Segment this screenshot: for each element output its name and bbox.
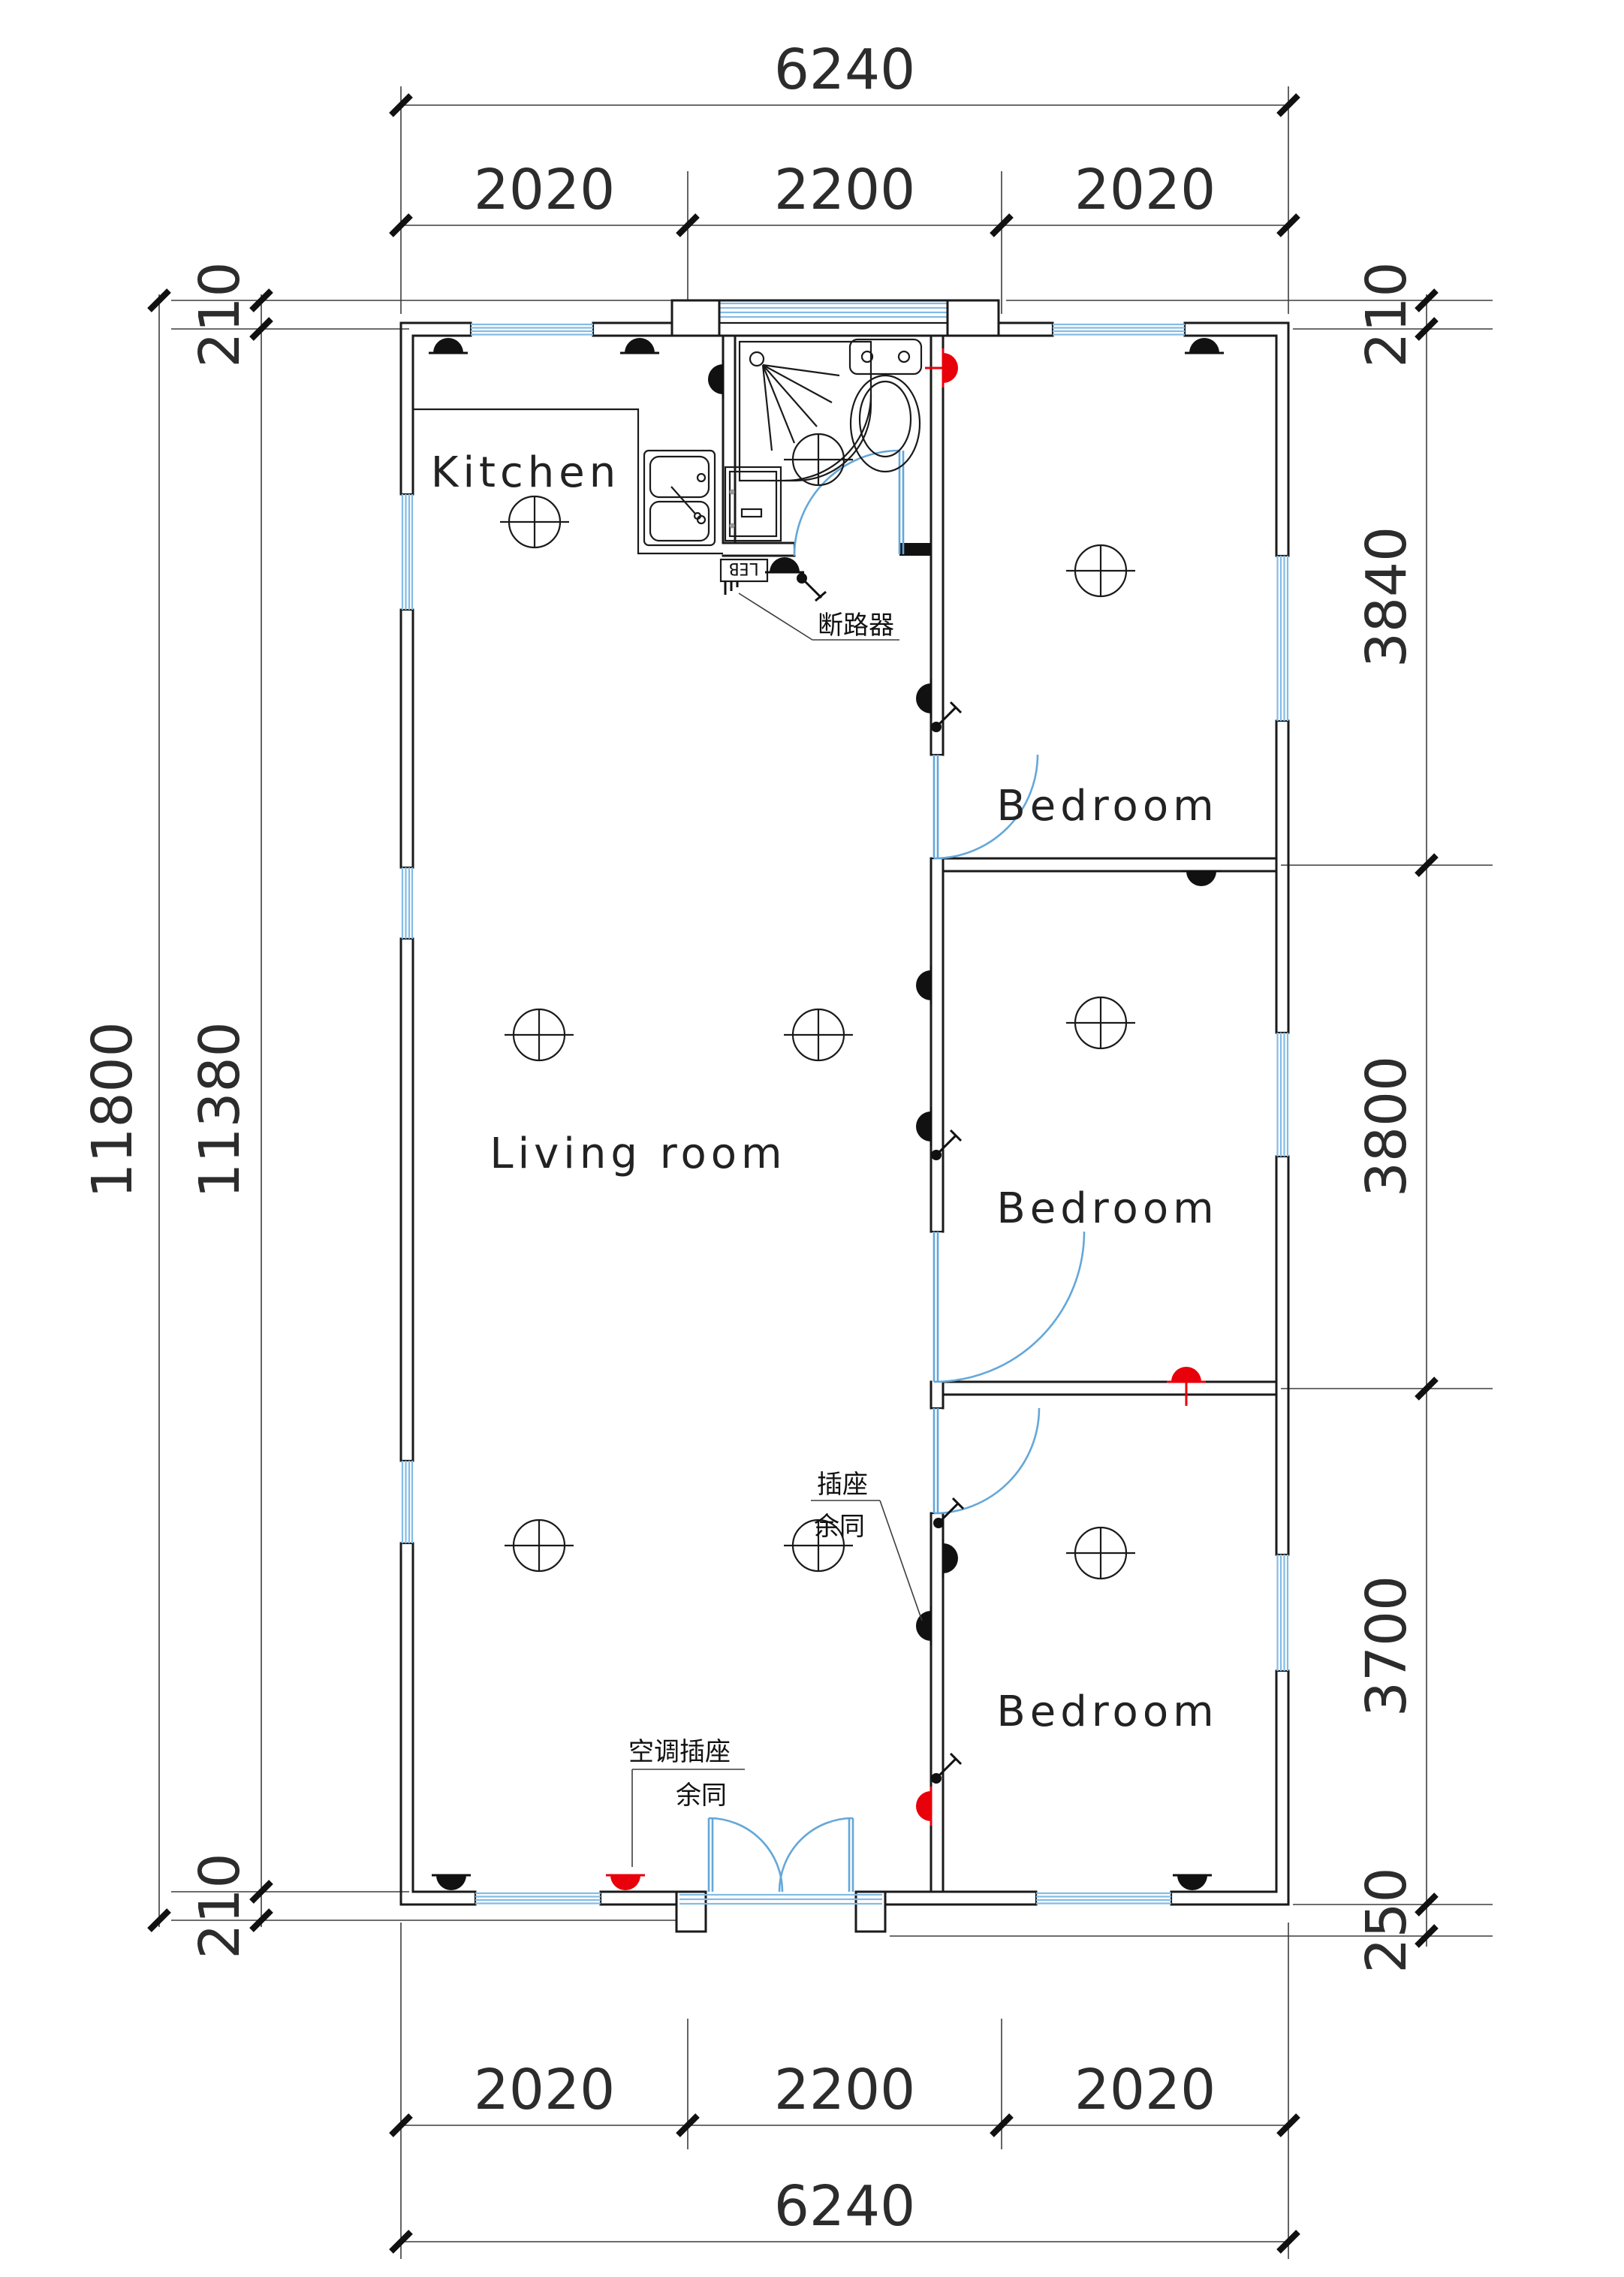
kitchen-sink: [644, 451, 715, 545]
socket-icon-living-bd1: [916, 679, 931, 718]
door-bedroom2: [934, 1232, 1084, 1382]
socket-note: 余同: [814, 1512, 865, 1542]
switch-icon-bathroom: [797, 573, 826, 601]
ceiling-light-icon-living-2: [784, 1009, 853, 1060]
interior-walls: [723, 336, 1276, 1892]
dim-bottom-seg3: 2020: [1074, 2058, 1216, 2122]
window-top-bedroom1: [1053, 324, 1185, 335]
dim-top-seg1: 2020: [474, 158, 615, 222]
circuit-breaker-label: 断路器: [818, 611, 894, 641]
ceiling-light-icon-kitchen: [500, 496, 569, 547]
window-top-bathroom-bay: [719, 303, 948, 317]
ac-socket-icon-living-wall: [916, 1787, 931, 1826]
dim-bottom-overall: 6240: [774, 2174, 915, 2239]
socket-icon-kitchen-wall: [708, 360, 723, 399]
room-label-bedroom-middle: Bedroom: [996, 1184, 1218, 1233]
socket-icon-kitchen-top-1: [429, 338, 468, 353]
ceiling-light-icon-bedroom3: [1066, 1528, 1135, 1579]
dim-left-wall-top: 210: [188, 261, 252, 367]
dim-top-seg3: 2020: [1074, 158, 1216, 222]
dim-top-overall: 6240: [774, 38, 915, 102]
dim-right-seg1: 3840: [1354, 526, 1419, 668]
socket-icon-bedroom2-wall: [1182, 871, 1221, 886]
dim-right-wall-top: 210: [1354, 261, 1419, 367]
ceiling-light-icon-bedroom1: [1066, 545, 1135, 596]
window-left-living-upper: [402, 867, 412, 939]
annotation-circuit-breaker: 断路器: [739, 593, 899, 641]
ceiling-light-icon-bedroom2: [1066, 997, 1135, 1048]
dim-right-wall-bottom: 250: [1354, 1867, 1419, 1973]
socket-icon-living-mid: [916, 966, 931, 1005]
dim-bottom-seg1: 2020: [474, 2058, 615, 2122]
dimension-bottom: 2020 2200 2020 6240: [391, 1923, 1298, 2259]
window-left-kitchen: [402, 494, 412, 610]
window-bottom-living: [475, 1893, 601, 1904]
socket-icon-bedroom3-bottom: [1173, 1875, 1212, 1890]
floor-plan-drawing: 6240 2020 2200 2020 2020 2200 2020 6240: [0, 0, 1624, 2277]
socket-icon-bathroom-door: [765, 557, 804, 572]
switch-icon-bedroom2: [931, 1130, 961, 1160]
floor-plan-page: 6240 2020 2200 2020 2020 2200 2020 6240: [0, 0, 1624, 2277]
structural-columns: [672, 300, 999, 1932]
ac-socket-note: 余同: [676, 1781, 727, 1811]
dimension-left: 11800 210 11380 210: [80, 261, 679, 1959]
dimension-top: 6240 2020 2200 2020: [391, 38, 1298, 314]
room-label-bedroom-top: Bedroom: [996, 782, 1218, 831]
socket-icon-living-bd3: [916, 1606, 931, 1645]
window-top-kitchen: [471, 324, 593, 335]
dim-right-seg3: 3700: [1354, 1576, 1419, 1717]
dim-right-seg2: 3800: [1354, 1056, 1419, 1197]
room-label-kitchen: Kitchen: [431, 448, 620, 497]
window-left-living-lower: [402, 1461, 412, 1543]
dim-top-seg2: 2200: [774, 158, 915, 222]
dim-left-overall: 11800: [80, 1021, 145, 1198]
ac-socket-icon-bedroom2: [1167, 1367, 1206, 1406]
dim-bottom-seg2: 2200: [774, 2058, 915, 2122]
distribution-box-label: LEB: [729, 559, 759, 578]
door-entrance-double: [679, 1818, 882, 1904]
window-bottom-bedroom3: [1036, 1893, 1171, 1904]
ac-socket-icon-living-bottom: [606, 1875, 645, 1890]
socket-icon-living-bd2: [916, 1107, 931, 1146]
ceiling-light-icon-living-1: [505, 1009, 574, 1060]
distribution-box: LEB: [721, 559, 767, 595]
window-right-bedroom2: [1278, 1033, 1288, 1157]
socket-icon-bedroom3-door: [943, 1539, 958, 1578]
dim-left-inner: 11380: [188, 1021, 252, 1198]
dim-left-wall-bottom: 210: [188, 1853, 252, 1959]
socket-label: 插座: [817, 1470, 868, 1500]
window-right-bedroom3: [1278, 1555, 1288, 1671]
door-bathroom: [794, 451, 903, 556]
room-label-living: Living room: [490, 1129, 786, 1178]
washing-machine: [725, 467, 781, 541]
window-right-bedroom1: [1278, 556, 1288, 721]
socket-icon-bedroom1-top: [1185, 338, 1224, 353]
annotation-ac-socket: 空调插座 余同: [628, 1737, 745, 1867]
ac-socket-label: 空调插座: [628, 1737, 731, 1767]
ceiling-light-icon-living-3: [505, 1520, 574, 1571]
ceiling-lights: [500, 434, 1135, 1579]
socket-icon-kitchen-top-2: [620, 338, 659, 353]
socket-icon-living-bottom: [432, 1875, 471, 1890]
door-bedroom3: [934, 1408, 1039, 1513]
room-label-bedroom-bottom: Bedroom: [996, 1687, 1218, 1736]
switch-icon-bedroom1: [931, 702, 961, 732]
switch-icon-entrance: [931, 1754, 961, 1784]
